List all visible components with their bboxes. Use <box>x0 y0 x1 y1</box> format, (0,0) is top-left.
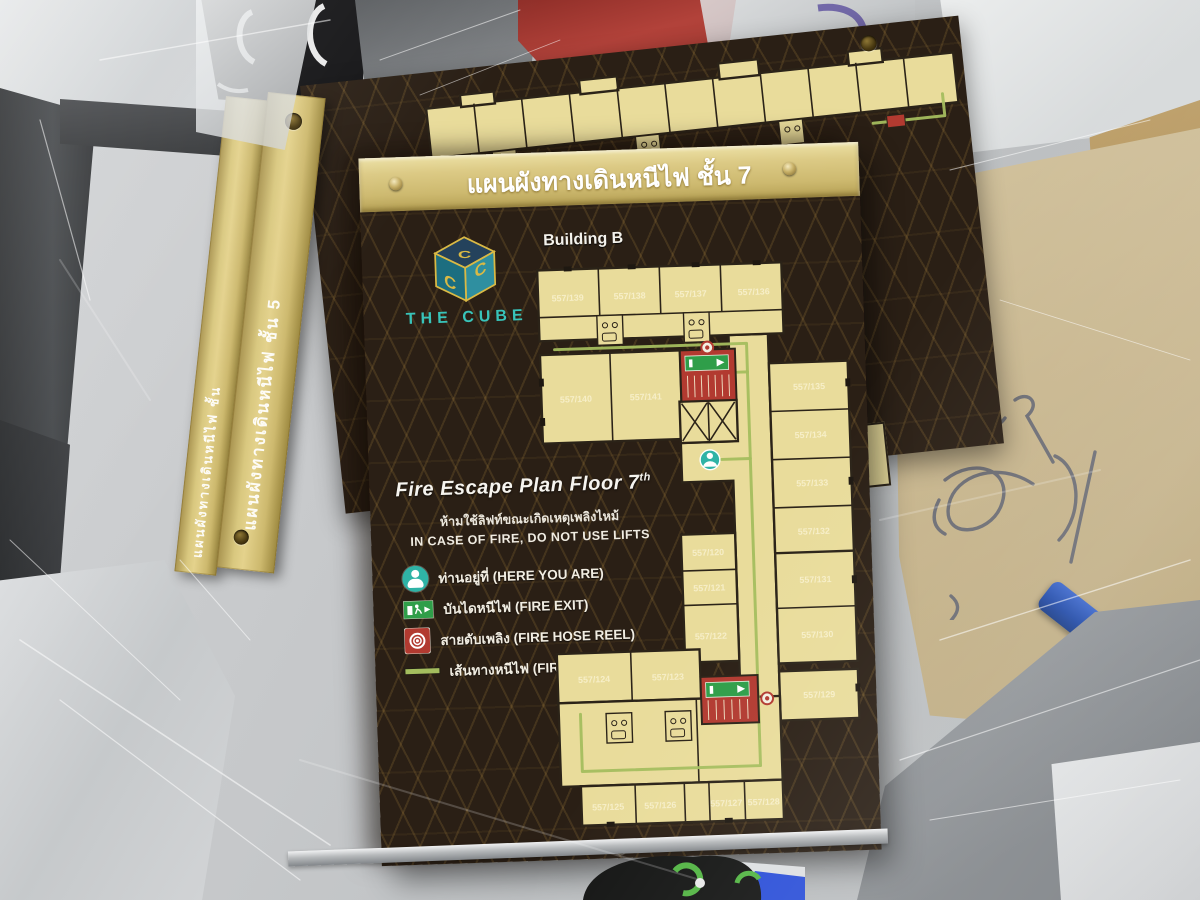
black-object-with-green-eyes <box>565 845 810 900</box>
room-label: 557/135 <box>793 381 825 392</box>
mounting-hole <box>233 529 250 546</box>
building-label: Building B <box>543 230 624 251</box>
plastic-bag-bottom-left <box>0 560 235 900</box>
room-label: 557/120 <box>692 547 724 558</box>
fire-exit-route-icon <box>405 668 439 674</box>
room-label: 557/131 <box>799 574 831 585</box>
room-label: 557/128 <box>748 796 780 807</box>
room-label: 557/138 <box>613 290 645 301</box>
room-label: 557/129 <box>803 689 835 700</box>
stacked-sign-right-label: แผนผังทางเดินหนีไฟ ชั้น 5 <box>236 297 288 532</box>
room-label: 557/127 <box>710 798 742 809</box>
fire-stair-top <box>680 349 737 402</box>
room-label: 557/136 <box>738 286 770 297</box>
room-label: 557/124 <box>578 674 610 685</box>
fire-stair-bottom <box>700 675 759 724</box>
room-label: 557/137 <box>675 288 707 299</box>
fire-exit-icon <box>403 600 434 619</box>
floor-plan: 557/139 557/138 557/137 557/136 557/140 … <box>534 248 878 843</box>
room-label: 557/126 <box>644 800 676 811</box>
room-label: 557/140 <box>560 394 592 405</box>
cube-logo-icon: C C C <box>425 234 505 307</box>
brand-name: THE CUBE <box>391 306 542 329</box>
svg-text:C: C <box>458 249 472 261</box>
photo-scene: แผนผังทางเดินหนีไฟ ชั้น แผนผังทางเดินหนี… <box>0 0 1200 900</box>
room-label: 557/134 <box>794 429 826 440</box>
room-label: 557/139 <box>551 292 583 303</box>
black-blob <box>583 856 761 900</box>
room-label: 557/141 <box>630 391 662 402</box>
room-label: 557/133 <box>796 477 828 488</box>
fire-hose-reel-icon <box>404 627 431 654</box>
room-label: 557/122 <box>695 631 727 642</box>
brand-logo: C C C THE CUBE <box>389 233 542 330</box>
room-label: 557/132 <box>798 526 830 537</box>
room-label: 557/130 <box>801 629 833 640</box>
room-label: 557/123 <box>652 671 684 682</box>
paper-scrap-on-floor <box>1042 742 1200 900</box>
room-label: 557/121 <box>693 582 725 593</box>
room-label: 557/125 <box>592 802 624 813</box>
fire-escape-sign: แผนผังทางเดินหนีไฟ ชั้น 7 C C C THE CUBE… <box>358 142 881 866</box>
sign-body: C C C THE CUBE Building B Fire Escape Pl… <box>360 196 881 866</box>
here-you-are-marker <box>700 450 720 470</box>
here-you-are-icon <box>402 565 429 592</box>
